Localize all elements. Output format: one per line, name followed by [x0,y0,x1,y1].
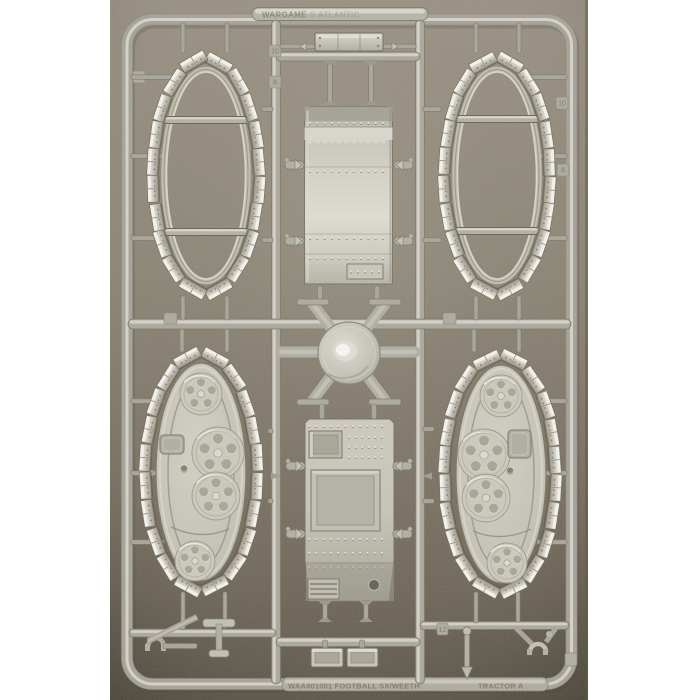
svg-text:TRACTOR A: TRACTOR A [478,682,524,691]
svg-text:8: 8 [561,168,565,175]
svg-text:8: 8 [273,80,277,87]
svg-text:10: 10 [271,49,279,56]
svg-text:S ATLANTIC: S ATLANTIC [310,11,360,20]
svg-text:WARGAME: WARGAME [262,11,307,20]
svg-text:WAA401001 FOOTBALL SX/WEETH: WAA401001 FOOTBALL SX/WEETH [288,682,420,691]
svg-text:10: 10 [558,101,566,108]
svg-text:12: 12 [439,627,447,634]
